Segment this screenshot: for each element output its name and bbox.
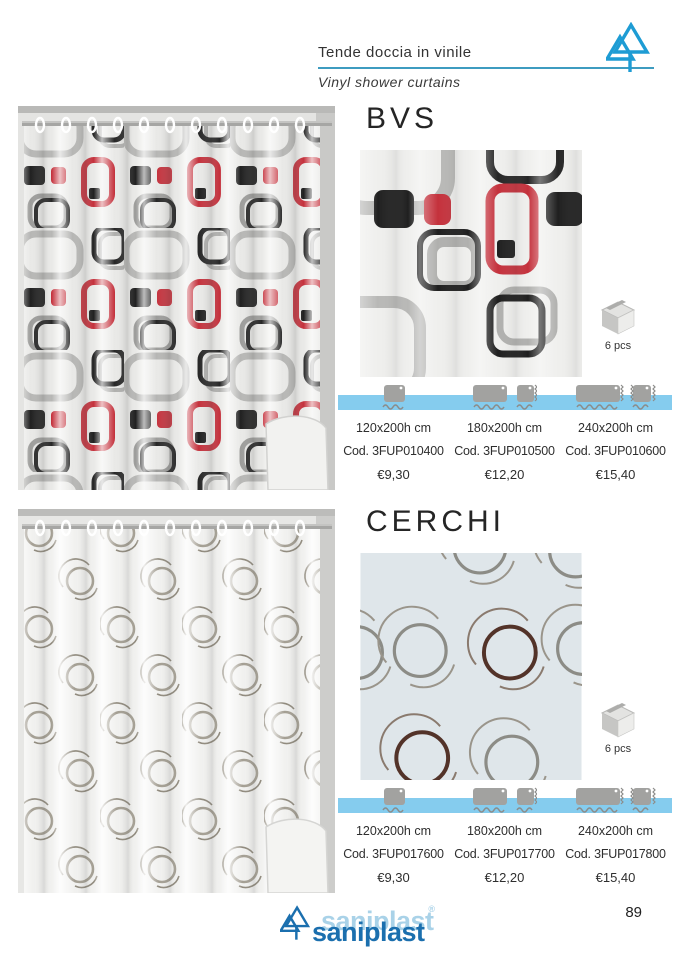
brand-wordmark: saniplast saniplast ® <box>312 919 425 946</box>
pack-info: 6 pcs <box>592 703 644 755</box>
variant-size: 180x200h cm <box>449 824 560 838</box>
variant-120: 120x200h cm Cod. 3FUP010400 €9,30 <box>338 382 449 482</box>
variant-240: 240x200h cm Cod. 3FUP017800 €15,40 <box>560 785 671 885</box>
pattern-swatch-bvs <box>360 150 582 377</box>
variant-code: Cod. 3FUP010400 <box>338 444 449 458</box>
product-name: CERCHI <box>366 505 505 539</box>
header-divider <box>318 67 654 69</box>
variant-list: 120x200h cm Cod. 3FUP017600 €9,30 180x20… <box>338 785 672 885</box>
variant-code: Cod. 3FUP017600 <box>338 847 449 861</box>
variant-price: €15,40 <box>560 870 671 885</box>
variant-code: Cod. 3FUP017800 <box>560 847 671 861</box>
carton-box-icon <box>596 703 640 739</box>
variant-size: 120x200h cm <box>338 421 449 435</box>
variant-size: 180x200h cm <box>449 421 560 435</box>
brand-logo: saniplast saniplast ® <box>280 896 425 946</box>
variant-size: 120x200h cm <box>338 824 449 838</box>
product-section-cerchi: CERCHI <box>0 503 678 903</box>
pack-info: 6 pcs <box>592 300 644 352</box>
curtain-size-240-icon <box>560 785 671 815</box>
variant-size: 240x200h cm <box>560 421 671 435</box>
variant-code: Cod. 3FUP017700 <box>449 847 560 861</box>
variant-code: Cod. 3FUP010500 <box>449 444 560 458</box>
page-subtitle: Vinyl shower curtains <box>318 74 461 90</box>
variant-code: Cod. 3FUP010600 <box>560 444 671 458</box>
variant-240: 240x200h cm Cod. 3FUP010600 €15,40 <box>560 382 671 482</box>
variant-price: €15,40 <box>560 467 671 482</box>
curtain-size-120-icon <box>338 382 449 412</box>
curtain-size-240-icon <box>560 382 671 412</box>
variant-120: 120x200h cm Cod. 3FUP017600 €9,30 <box>338 785 449 885</box>
product-name: BVS <box>366 102 438 136</box>
variant-price: €9,30 <box>338 467 449 482</box>
carton-box-icon <box>596 300 640 336</box>
pack-quantity: 6 pcs <box>592 743 644 755</box>
curtain-size-120-icon <box>338 785 449 815</box>
curtain-size-180-icon <box>449 382 560 412</box>
variant-180: 180x200h cm Cod. 3FUP017700 €12,20 <box>449 785 560 885</box>
product-photo-bvs <box>18 106 335 490</box>
brand-tree-icon <box>606 22 650 76</box>
pack-quantity: 6 pcs <box>592 340 644 352</box>
brand-tree-icon <box>280 904 310 944</box>
pattern-swatch-cerchi <box>360 553 582 780</box>
variant-price: €9,30 <box>338 870 449 885</box>
variant-list: 120x200h cm Cod. 3FUP010400 €9,30 180x20… <box>338 382 672 482</box>
variant-180: 180x200h cm Cod. 3FUP010500 €12,20 <box>449 382 560 482</box>
catalog-page: Tende doccia in vinile Vinyl shower curt… <box>0 0 678 959</box>
product-photo-cerchi <box>18 509 335 893</box>
curtain-size-180-icon <box>449 785 560 815</box>
variant-size: 240x200h cm <box>560 824 671 838</box>
page-number: 89 <box>625 904 642 921</box>
trademark-symbol: ® <box>428 905 434 914</box>
variant-price: €12,20 <box>449 870 560 885</box>
page-title: Tende doccia in vinile <box>318 44 472 61</box>
brand-wordmark-text: saniplast <box>312 917 425 947</box>
product-section-bvs: BVS <box>0 100 678 500</box>
variant-price: €12,20 <box>449 467 560 482</box>
